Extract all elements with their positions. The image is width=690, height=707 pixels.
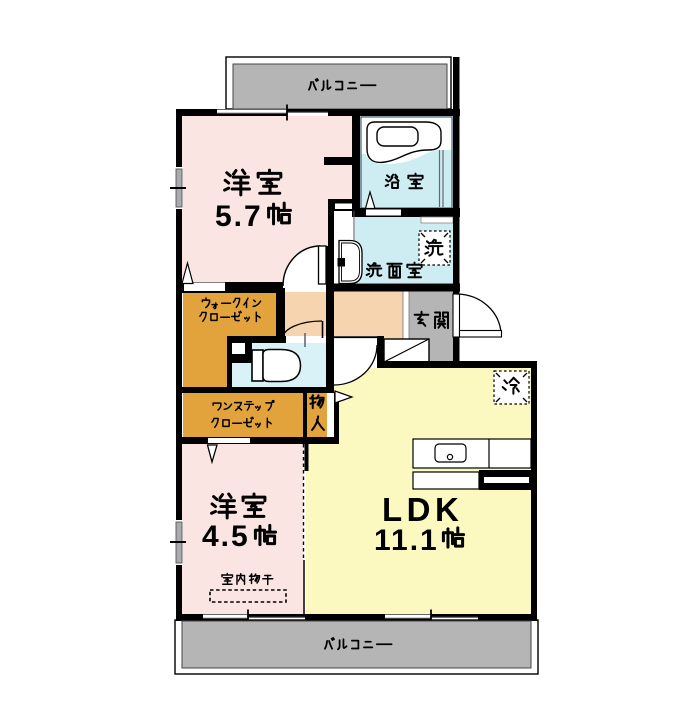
svg-text:5.7: 5.7	[215, 200, 263, 233]
svg-text:4.5: 4.5	[202, 520, 250, 553]
svg-text:LDK: LDK	[382, 491, 463, 528]
svg-text:11.1: 11.1	[374, 524, 439, 557]
